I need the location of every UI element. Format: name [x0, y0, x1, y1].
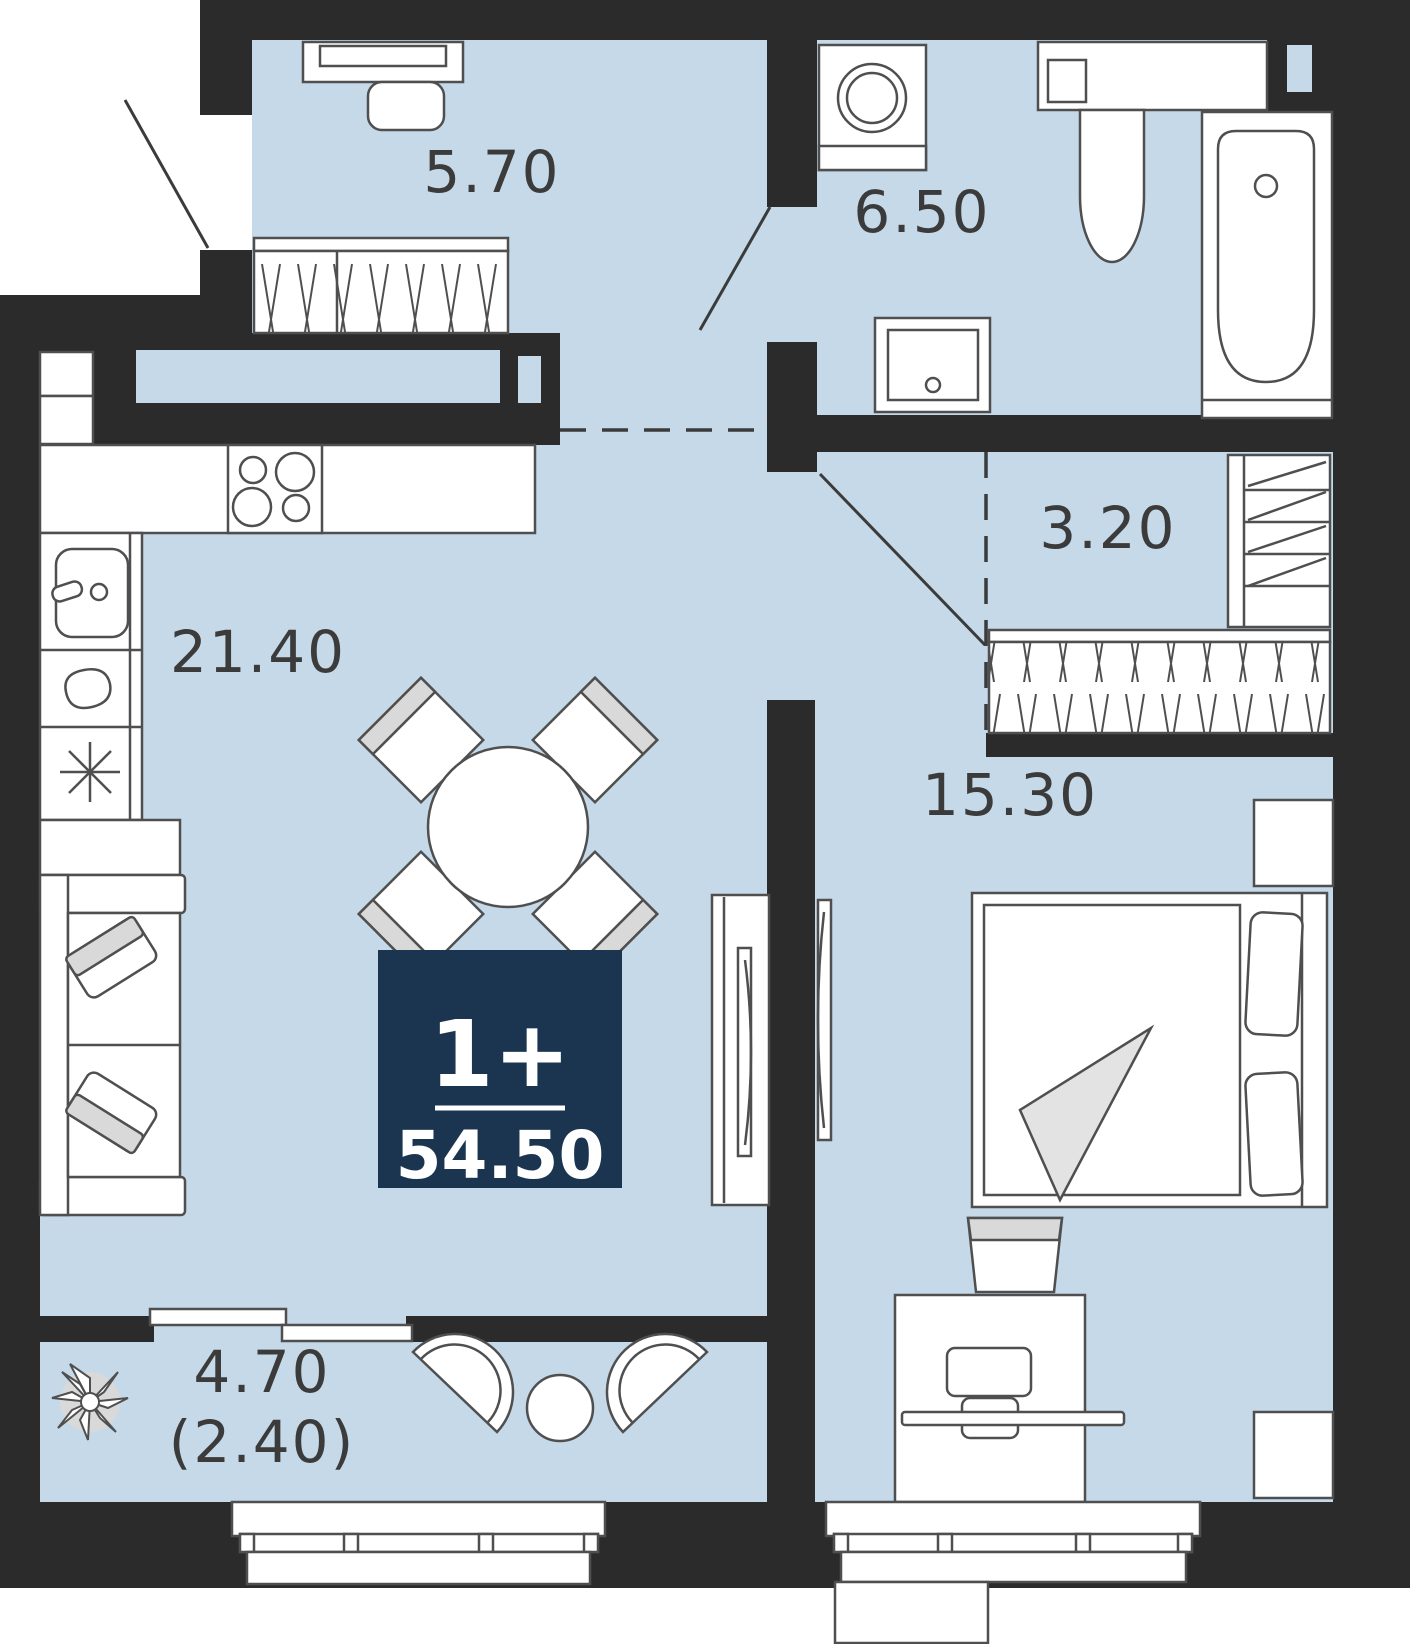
floor-plan: 1+ 54.50	[0, 0, 1410, 1644]
window-ledge	[835, 1582, 988, 1643]
tv-cabinet-living	[712, 895, 769, 1205]
washing-machine	[819, 45, 926, 170]
fridge-snowflake-icon	[60, 742, 120, 802]
side-table	[40, 820, 180, 875]
badge-rooms: 1+	[429, 1001, 570, 1108]
closet-shelving	[1228, 455, 1330, 627]
room-label-hallway: 5.70	[423, 138, 560, 206]
dining-table	[428, 747, 588, 907]
room-label-balcony: 4.70	[193, 1338, 330, 1406]
stove	[228, 445, 322, 533]
laptop	[947, 1348, 1031, 1396]
room-label-closet: 3.20	[1039, 494, 1176, 562]
nightstand	[1254, 1412, 1333, 1498]
floor-plan-page: 1+ 54.50	[0, 0, 1410, 1644]
entrance-door	[125, 100, 208, 248]
desk-chair	[968, 1218, 1062, 1292]
window-balcony	[232, 1502, 605, 1584]
sofa	[40, 875, 185, 1215]
room-label-bathroom: 6.50	[853, 178, 990, 246]
nightstand	[1254, 800, 1333, 886]
bathroom-sink	[875, 318, 990, 412]
hallway-pouf	[368, 82, 444, 130]
area-badge: 1+ 54.50	[378, 950, 622, 1194]
badge-area: 54.50	[396, 1117, 605, 1194]
bathtub	[1202, 112, 1332, 418]
hallway-wardrobe	[254, 238, 508, 333]
room-label-balcony-coef: (2.40)	[169, 1408, 355, 1476]
window-bedroom	[826, 1502, 1200, 1643]
kitchen-sink	[51, 549, 128, 637]
vent-niche	[1287, 45, 1312, 92]
closet-wardrobe	[989, 630, 1330, 733]
tv-bedroom	[818, 900, 831, 1140]
balcony-table	[527, 1375, 593, 1441]
room-label-bedroom: 15.30	[922, 761, 1098, 829]
duct-shaft	[40, 352, 93, 444]
bed	[972, 893, 1327, 1207]
room-label-living: 21.40	[170, 618, 346, 686]
hallway-console	[303, 42, 463, 82]
